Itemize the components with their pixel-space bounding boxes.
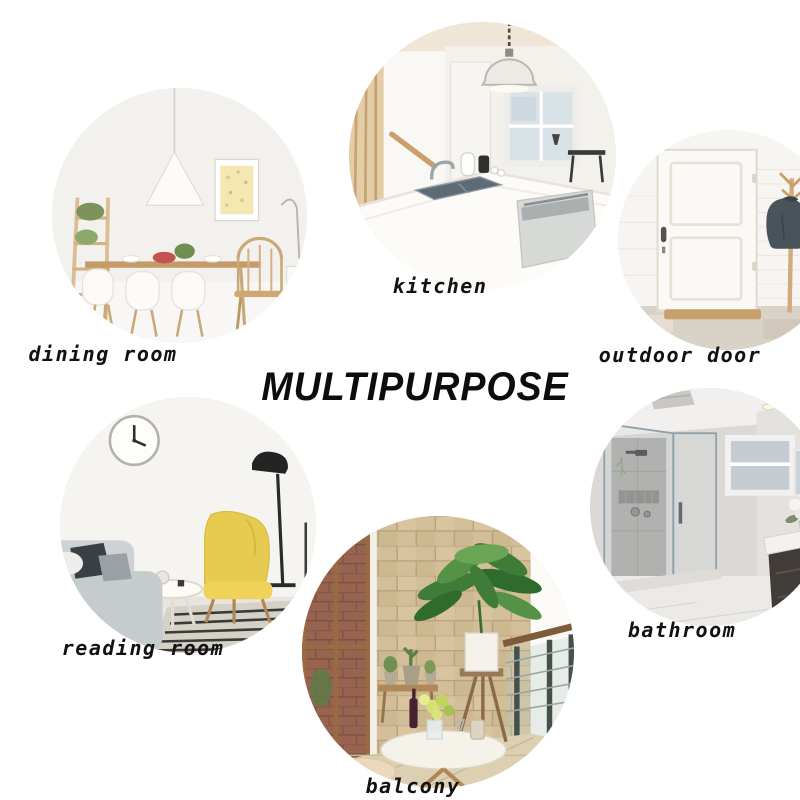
bathroom-label: bathroom: [592, 618, 772, 642]
window: [507, 89, 576, 164]
poster-title: MULTIPURPOSE: [227, 366, 603, 408]
wall-clock: [110, 416, 159, 465]
candle-jar: [471, 720, 485, 739]
multipurpose-poster: dining room: [0, 0, 800, 800]
bathroom-photo: [590, 388, 800, 626]
kitchen-label: kitchen: [360, 274, 520, 298]
bathroom-illustration: [590, 388, 800, 626]
balcony-photo: [302, 516, 574, 788]
grey-pillow: [98, 553, 131, 581]
balcony-label: balcony: [323, 774, 503, 798]
dining-room-illustration: [52, 88, 307, 343]
entry-door: [658, 150, 757, 311]
doormat: [664, 309, 761, 319]
window: [728, 438, 792, 493]
balcony-illustration: [302, 516, 574, 788]
reading-room-illustration: [60, 397, 316, 653]
wall-art: [215, 159, 258, 220]
glass-door: [302, 524, 377, 772]
shower-enclosure: [604, 424, 716, 595]
dining-room-label: dining room: [13, 342, 193, 366]
dining-room-photo: [52, 88, 307, 343]
flower-vase: [427, 720, 442, 739]
outdoor-door-photo: [618, 130, 800, 350]
door-handle: [661, 227, 667, 242]
reading-room-photo: [60, 397, 316, 653]
outdoor-door-label: outdoor door: [590, 343, 770, 367]
kitchen-photo: [349, 22, 616, 289]
dishwasher: [517, 190, 597, 267]
kitchen-illustration: [349, 22, 616, 289]
outdoor-door-illustration: [618, 130, 800, 350]
reading-room-label: reading room: [53, 636, 233, 660]
wine-bottle: [409, 698, 417, 728]
